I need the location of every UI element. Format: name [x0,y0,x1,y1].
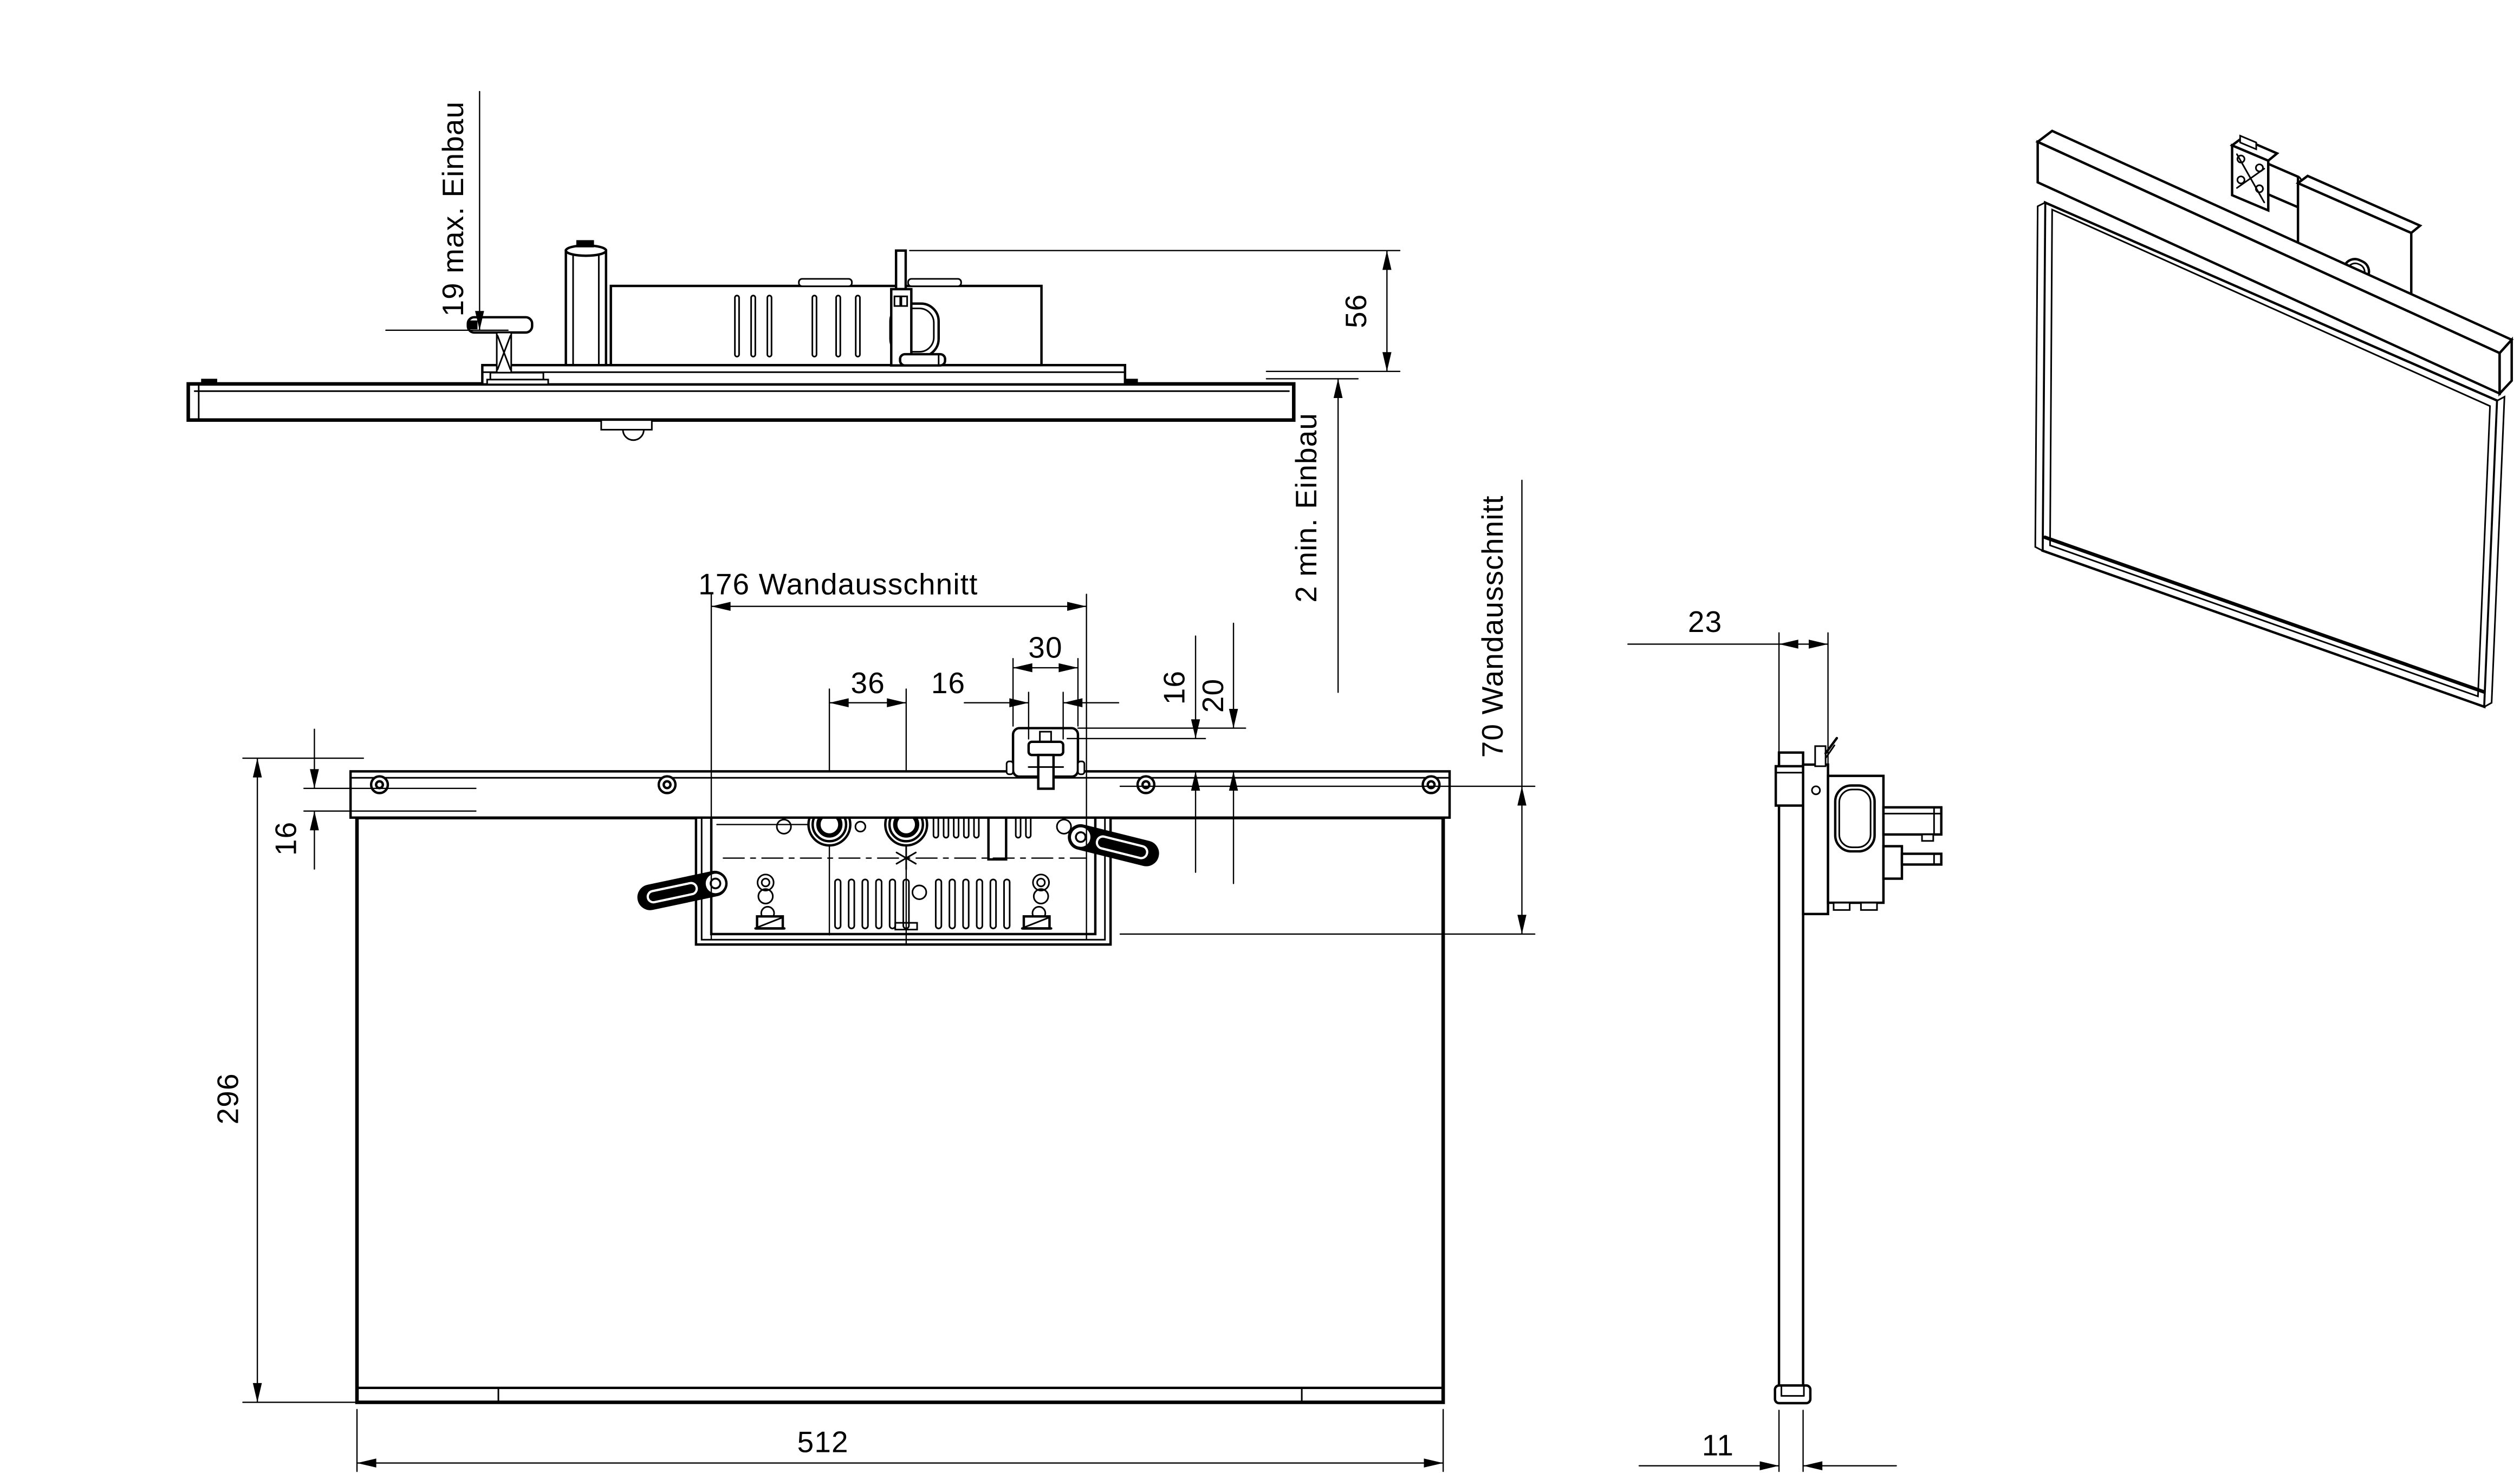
dim-label-cutout-width: 176 Wandausschnitt [698,567,978,601]
terminal-connector-bottom [1883,846,1941,879]
top-section-view: 19 max. Einbau 56 2 min. Einbau [189,92,1400,692]
rail-screw [1138,777,1154,793]
dim-label-36: 36 [851,666,885,700]
dim-label-min-install: 2 min. Einbau [1289,413,1323,603]
mounting-plate [482,365,1125,384]
side-view: 23 11 [1628,605,1941,1471]
dim-panel-thickness: 11 [1639,1410,1897,1471]
dim-label-56: 56 [1339,294,1373,328]
dim-label-20-proj: 20 [1196,679,1230,713]
dim-label-11: 11 [1702,1428,1734,1462]
corner-tab [756,916,784,928]
dim-label-296: 296 [211,1073,245,1124]
corner-tab [1022,916,1051,928]
dim-label-30: 30 [1028,631,1062,664]
dim-label-16-inner: 16 [931,666,965,700]
rail-screw [1423,777,1439,793]
dim-label-512: 512 [797,1425,849,1458]
front-view: 176 Wandausschnitt 36 16 30 [211,480,1535,1471]
dim-label-16-proj: 16 [1158,670,1191,705]
dim-label-cutout-height: 70 Wandausschnitt [1476,495,1509,758]
battery-cylinder [566,240,606,365]
top-rail [350,771,1450,817]
dim-label-16-edge: 16 [269,822,302,856]
technical-drawing: 19 max. Einbau 56 2 min. Einbau [0,0,2520,1473]
mechanism-side-housing [1828,776,1883,910]
dim-hole-spacing: 36 [829,666,906,707]
dim-latch-outer-width: 30 [1013,631,1078,726]
dim-min-install: 2 min. Einbau [1267,379,1358,692]
rail-screw [659,777,676,793]
dim-panel-width: 512 [357,1410,1443,1471]
dim-label-max-install: 19 max. Einbau [436,101,470,317]
dim-label-23: 23 [1688,605,1722,638]
panel-tab [201,379,217,384]
rail-screw [371,777,388,793]
terminal-connector-top [1883,807,1941,841]
perspective-view [2035,131,2511,707]
perspective-cylinder [2268,164,2298,207]
mechanism-body [611,279,1042,365]
dim-max-install: 19 max. Einbau [386,92,508,330]
